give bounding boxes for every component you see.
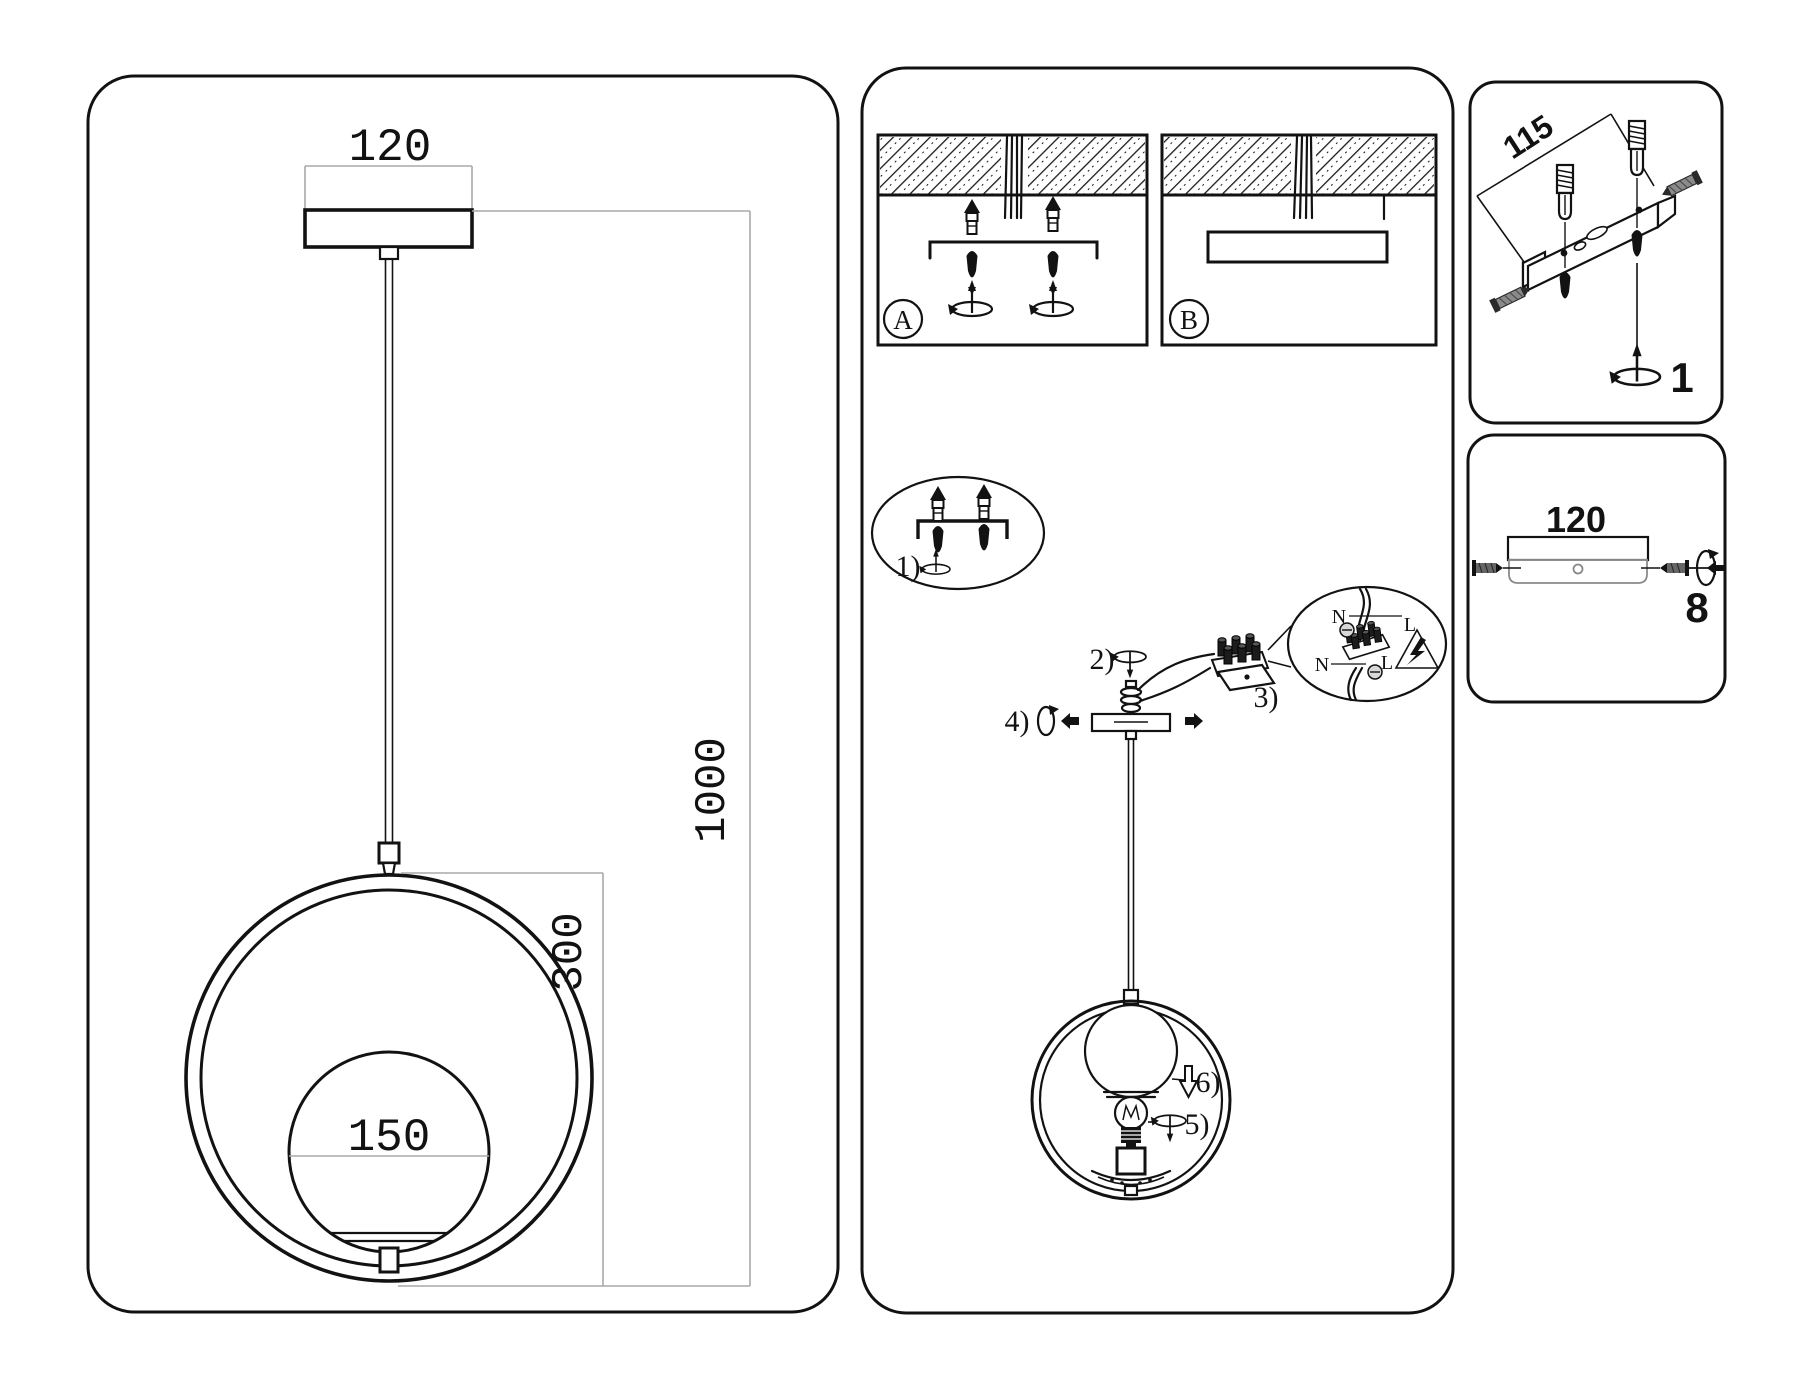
wall-plug-icon (1557, 165, 1573, 219)
canopy-plate (305, 210, 472, 247)
dim-label-150: 150 (348, 1112, 431, 1164)
bulb-icon (1115, 1097, 1147, 1148)
step-5-label: 5) (1185, 1108, 1210, 1141)
installation-steps-panel: A B (862, 68, 1453, 1313)
dim-label-1000: 1000 (688, 737, 738, 843)
canopy-bar-drawing (1508, 537, 1648, 583)
terminal-n-lower: N (1315, 654, 1329, 676)
dim-label-120: 120 (349, 122, 432, 174)
dim-canopy-width: 120 (305, 122, 472, 209)
insert-arrow-icon (1180, 1066, 1197, 1097)
option-b-label: B (1180, 305, 1198, 335)
wall-plug-icon (1629, 121, 1645, 175)
wiring-detail-balloon: N L N L (1268, 587, 1446, 701)
ring-connector (379, 843, 399, 863)
step-6-group: 6) (1172, 1066, 1221, 1099)
rotation-icon (1151, 1115, 1186, 1142)
mounting-option-a: A (878, 135, 1147, 345)
push-arrow-left (1061, 713, 1079, 729)
globe (1085, 1005, 1177, 1097)
push-arrow-right (1185, 713, 1203, 729)
dim-globe: 150 (289, 1112, 489, 1164)
option-a-label: A (893, 305, 913, 335)
step-4-label: 4) (1005, 705, 1030, 738)
mounting-bracket-3d (1523, 196, 1675, 290)
step-2-group: 2) (1090, 643, 1147, 712)
dimension-drawing-panel: 120 150 300 (88, 76, 838, 1312)
ring-outer (186, 875, 592, 1281)
rotation-icon (1609, 344, 1660, 385)
machine-screw-icon (1659, 170, 1703, 201)
dim-label-300: 300 (545, 912, 595, 991)
rotation-icon (1038, 705, 1059, 735)
bottom-socket (380, 1248, 398, 1272)
dim-label-115: 115 (1497, 108, 1560, 166)
stem-rod (386, 259, 393, 843)
wire (1140, 668, 1210, 701)
terminal-l-upper: L (1404, 614, 1416, 636)
panel-border (88, 76, 838, 1312)
canopy-detail-panel: 120 (1468, 435, 1726, 702)
step-2-label: 2) (1090, 643, 1115, 676)
step-3-group: 3) (1212, 634, 1279, 714)
ring-connector-collar (383, 863, 395, 874)
step-4-group: 4) (1005, 705, 1204, 739)
screw-icon (1560, 272, 1571, 299)
dim-total-length: 1000 (398, 211, 750, 1286)
ring-inner (201, 890, 577, 1266)
step-1-detail: 1) (872, 477, 1044, 589)
instruction-sheet-canvas: 120 150 300 (0, 0, 1800, 1400)
part-number-1: 1 (1670, 354, 1693, 401)
canopy-bar (1208, 232, 1387, 262)
part-number-8: 8 (1685, 584, 1708, 631)
bracket-detail-panel: 115 1 (1470, 82, 1722, 423)
dim-label-120: 120 (1546, 499, 1606, 540)
rotation-icon (1111, 651, 1146, 678)
step-1-label: 1) (896, 550, 921, 583)
terminal-l-lower: L (1381, 652, 1393, 674)
dim-ring-height: 300 (401, 873, 603, 1286)
stem-joint (380, 247, 398, 259)
step-5-group: 5) (1148, 1108, 1210, 1142)
step-3-label: 3) (1254, 681, 1279, 714)
screw-right-icon (1641, 560, 1689, 576)
mounting-option-b: B (1162, 135, 1436, 345)
socket-housing (1117, 1148, 1145, 1174)
screw-icon (1632, 230, 1643, 257)
threaded-nipple (1121, 681, 1141, 712)
step-6-label: 6) (1196, 1066, 1221, 1099)
instruction-sheet: 120 150 300 (0, 0, 1800, 1400)
pendant-assembly (1032, 1001, 1230, 1199)
